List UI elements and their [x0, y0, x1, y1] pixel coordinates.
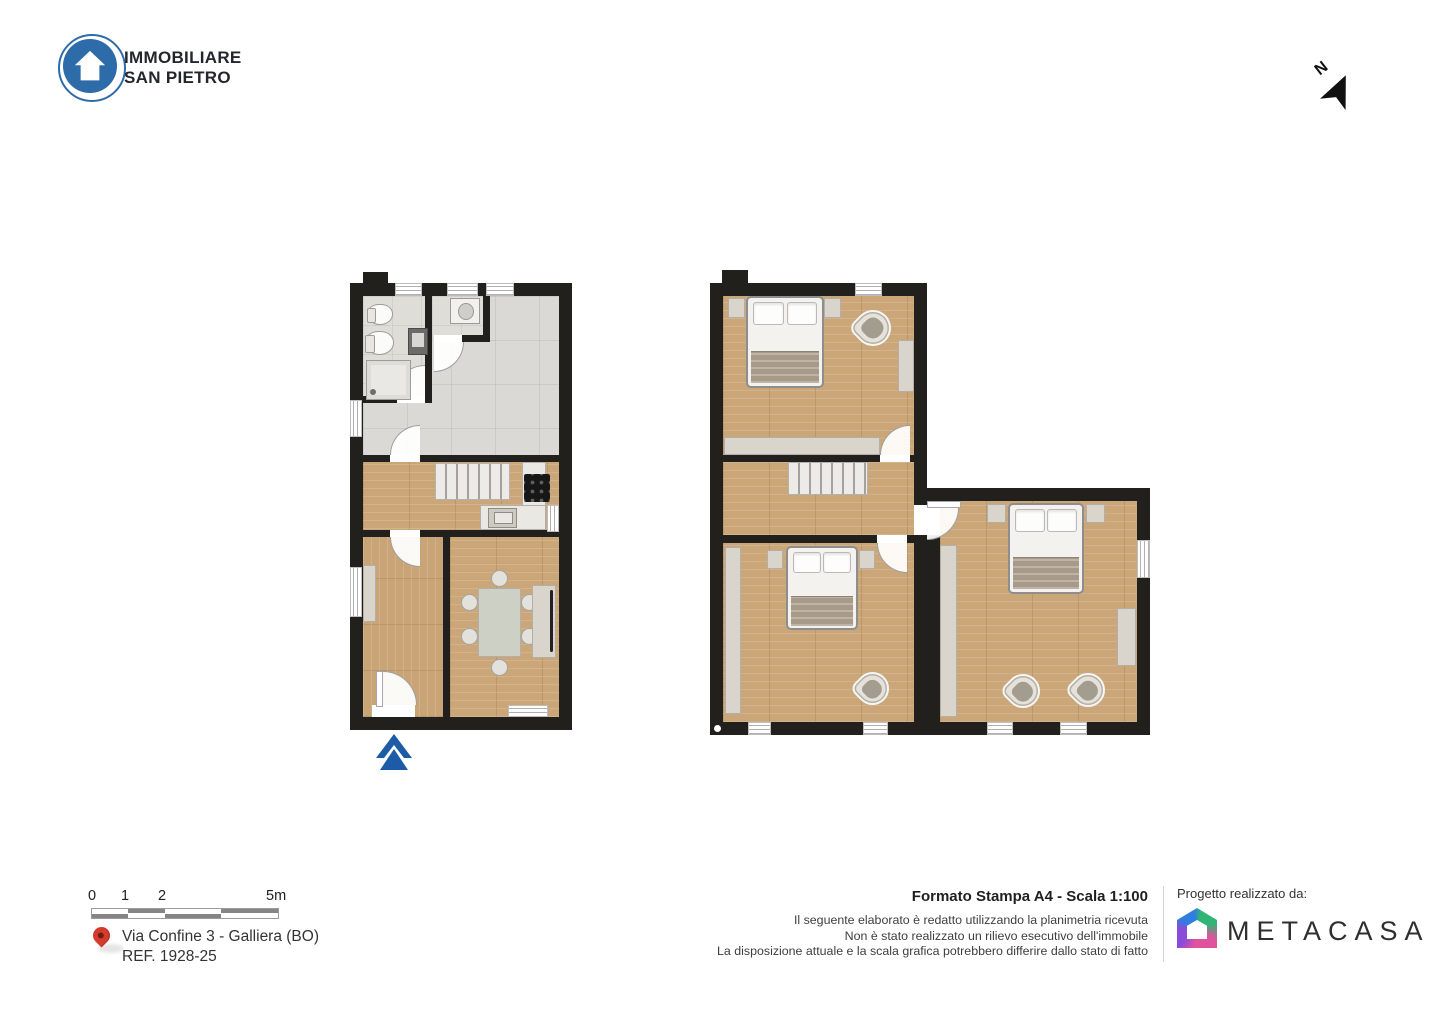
- double-bed: [1008, 503, 1084, 594]
- window: [447, 283, 478, 296]
- metacasa-wordmark: METACASA: [1227, 916, 1430, 947]
- door-stop-dot: [714, 725, 721, 732]
- first-floor-plan: [705, 270, 1155, 740]
- window: [1060, 722, 1087, 735]
- window: [547, 505, 559, 532]
- pillow: [1015, 509, 1045, 532]
- address-block: Via Confine 3 - Galliera (BO) REF. 1928-…: [90, 924, 430, 978]
- scale-label-1: 1: [121, 888, 129, 904]
- door-gap: [390, 455, 420, 462]
- armchair-seat: [1010, 678, 1036, 704]
- toilet-tank: [365, 335, 375, 352]
- pillow: [753, 302, 783, 325]
- wardrobe: [940, 545, 957, 717]
- washing-machine: [450, 298, 480, 324]
- disclaimer-line-1: Il seguente elaborato è redatto utilizza…: [548, 913, 1148, 927]
- wall: [363, 530, 390, 537]
- scale-segment: [128, 914, 165, 918]
- sideboard: [363, 565, 376, 622]
- nightstand: [767, 550, 783, 569]
- wall: [443, 537, 450, 717]
- north-indicator: N: [1312, 58, 1362, 118]
- agency-logo: IMMOBILIARE SAN PIETRO: [58, 32, 318, 112]
- shower-head: [370, 389, 376, 395]
- reference-line: REF. 1928-25: [122, 948, 217, 966]
- print-format-title: Formato Stampa A4 - Scala 1:100: [548, 888, 1148, 905]
- bidet: [367, 304, 393, 325]
- scale-segment: [165, 914, 221, 918]
- nightstand: [824, 298, 841, 318]
- scale-segment: [92, 909, 128, 913]
- blanket: [791, 596, 854, 626]
- armchair-seat: [1075, 677, 1101, 703]
- wall: [420, 530, 559, 537]
- scale-segment: [128, 909, 165, 913]
- kitchen-sink: [488, 508, 517, 528]
- bidet-tank: [367, 308, 376, 323]
- pillow: [1047, 509, 1077, 532]
- wall: [907, 535, 914, 543]
- scale-label-0: 0: [88, 888, 96, 904]
- scale-bar-graphic: [92, 909, 278, 918]
- toilet: [365, 331, 394, 355]
- nightstand: [987, 504, 1006, 523]
- wall: [910, 455, 914, 462]
- floorplan-page: IMMOBILIARE SAN PIETRO N: [0, 0, 1440, 1018]
- scale-segment: [92, 914, 128, 918]
- bedroom3-door-leaf: [927, 501, 961, 508]
- agency-name-line2: SAN PIETRO: [124, 68, 231, 88]
- disclaimer-line-2: Non è stato realizzato un rilievo esecut…: [548, 929, 1148, 943]
- double-bed: [786, 546, 858, 630]
- bathroom-sink: [408, 328, 428, 355]
- wardrobe: [725, 547, 741, 714]
- dining-chair: [461, 594, 478, 611]
- pin-dot: [97, 931, 105, 939]
- window: [508, 705, 548, 717]
- nightstand: [728, 298, 745, 318]
- wardrobe: [724, 437, 880, 455]
- shower: [366, 360, 411, 400]
- window: [855, 283, 882, 296]
- coat-rack-bar: [550, 590, 553, 652]
- window: [748, 722, 771, 735]
- scale-bar: 0 1 2 5m: [90, 888, 290, 920]
- stairs-first: [788, 462, 868, 495]
- dining-chair: [491, 570, 508, 587]
- entrance-arrow-icon: [374, 732, 414, 774]
- armchair-seat: [859, 314, 887, 342]
- window: [395, 283, 422, 296]
- scale-segment: [221, 914, 278, 918]
- dining-chair: [461, 628, 478, 645]
- door-gap: [434, 335, 462, 342]
- washing-machine-door: [458, 303, 474, 320]
- blanket: [751, 351, 819, 384]
- nightstand: [859, 550, 875, 569]
- wall: [723, 535, 877, 543]
- scale-segment: [221, 909, 278, 913]
- blanket: [1013, 557, 1079, 589]
- address-line: Via Confine 3 - Galliera (BO): [122, 928, 319, 946]
- credits-label: Progetto realizzato da:: [1177, 886, 1307, 901]
- window: [863, 722, 888, 735]
- stairs-ground: [435, 463, 510, 500]
- pillow: [793, 552, 821, 573]
- wall: [363, 455, 390, 462]
- dresser: [1117, 608, 1136, 666]
- agency-name-line1: IMMOBILIARE: [124, 48, 242, 68]
- scale-label-2: 2: [158, 888, 166, 904]
- scale-segment: [165, 909, 221, 913]
- sink-basin: [494, 512, 513, 524]
- door-gap: [390, 530, 420, 537]
- wall: [723, 455, 880, 462]
- footer-divider: [1163, 886, 1164, 962]
- dining-table: [478, 588, 521, 657]
- window: [1137, 540, 1150, 578]
- door-gap: [880, 455, 910, 462]
- door-gap: [877, 535, 907, 543]
- pillow: [787, 302, 817, 325]
- window: [350, 400, 362, 437]
- window: [987, 722, 1013, 735]
- armchair-seat: [860, 676, 886, 702]
- window: [486, 283, 514, 296]
- nightstand: [1086, 504, 1105, 523]
- wall: [462, 335, 490, 342]
- wardrobe: [898, 340, 914, 392]
- window: [350, 567, 362, 617]
- dining-chair: [491, 659, 508, 676]
- wall: [420, 455, 559, 462]
- pillow: [823, 552, 851, 573]
- scale-label-5m: 5m: [266, 888, 286, 904]
- chimney-stub: [722, 270, 748, 283]
- stove: [524, 474, 550, 502]
- metacasa-logo-icon: [1177, 908, 1217, 948]
- double-bed: [746, 296, 824, 388]
- ground-floor-plan: [350, 272, 572, 777]
- entrance-door-leaf: [376, 671, 383, 707]
- disclaimer-line-3: La disposizione attuale e la scala grafi…: [548, 944, 1148, 958]
- sink-basin: [412, 333, 425, 347]
